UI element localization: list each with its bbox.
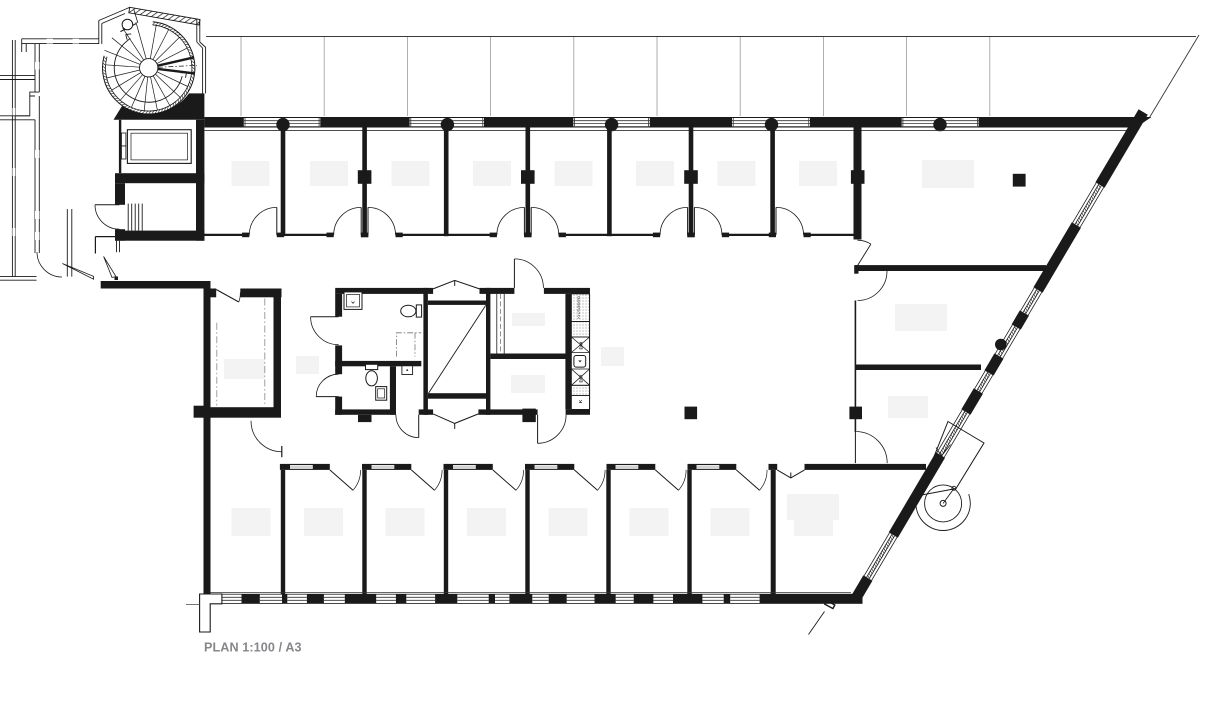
svg-text:PLAN 1:100 / A3: PLAN 1:100 / A3 [204, 641, 302, 655]
svg-text:DW: DW [579, 374, 584, 382]
svg-text:DW: DW [579, 341, 584, 349]
svg-text:KYL/SV/MIKRO: KYL/SV/MIKRO [577, 295, 581, 318]
